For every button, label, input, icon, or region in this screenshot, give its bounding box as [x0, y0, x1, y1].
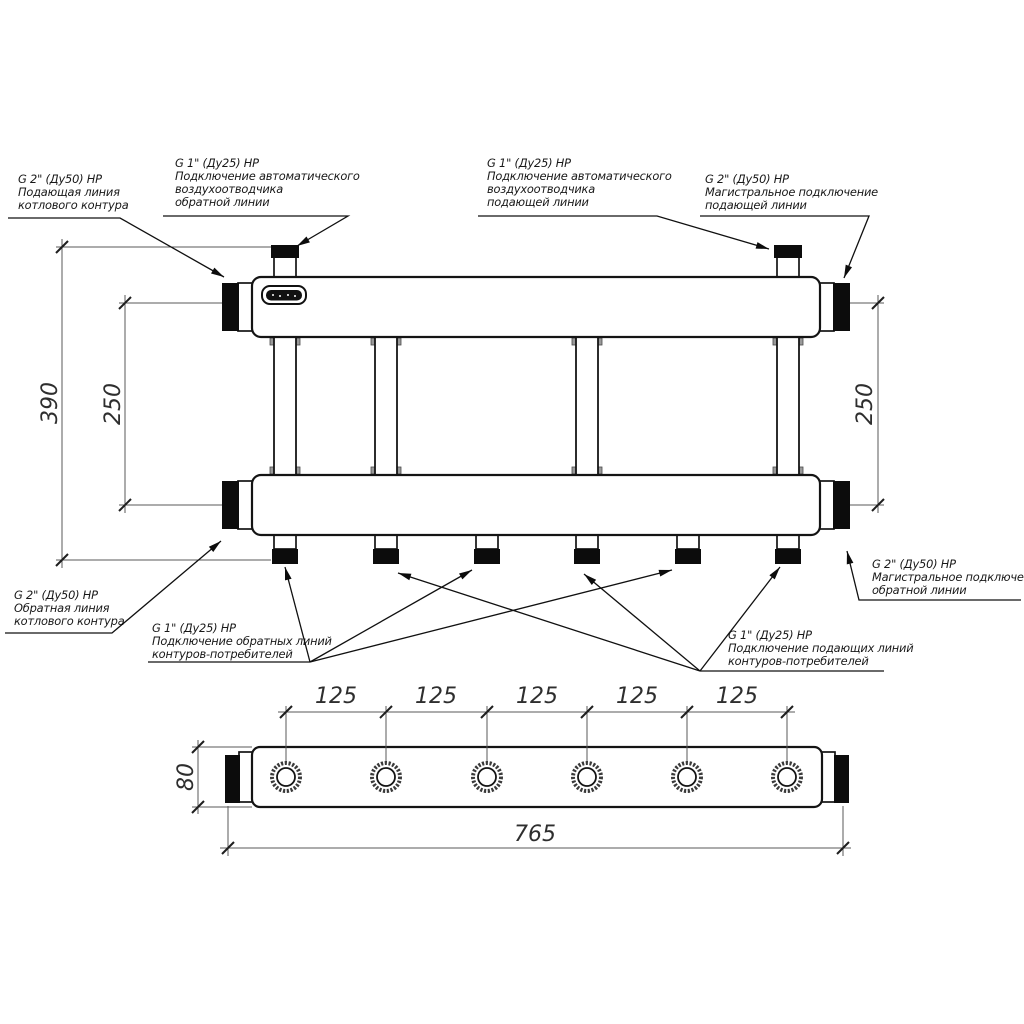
dimension-label: 80: [174, 763, 199, 791]
dimension-label: 390: [38, 382, 63, 424]
callout-text: котлового контура: [14, 614, 125, 628]
bottom-view: 125 125 125 125 125 80 765: [174, 684, 851, 856]
dimension-label: 125: [315, 684, 357, 709]
consumer-port-1: [272, 534, 298, 564]
g2-fitting-left: [225, 755, 240, 803]
bottom-manifold: [222, 475, 850, 535]
g2-fitting-right: [834, 755, 849, 803]
dimension-label: 125: [415, 684, 457, 709]
callout-text: обратной линии: [175, 195, 269, 209]
leader-arrow: [398, 573, 700, 671]
callout-boiler-return: G 2" (Ду50) НР Обратная линия котлового …: [5, 541, 221, 633]
callout-text: контуров-потребителей: [728, 654, 869, 668]
leader-line: [478, 216, 769, 249]
callout-text: подающей линии: [705, 198, 807, 212]
top-manifold: [222, 277, 850, 337]
consumer-port-5: [675, 534, 701, 564]
g2-fitting-bottom-left: [222, 481, 239, 529]
dimension-125-chain: 125 125 125 125 125: [278, 684, 795, 718]
callout-main-return: G 2" (Ду50) НР Магистральное подключение…: [847, 551, 1024, 600]
consumer-ports: [272, 534, 801, 564]
bottom-view-body: [225, 747, 849, 807]
g2-fitting-top-left: [222, 283, 239, 331]
callout-consumer-supplies: G 1" (Ду25) НР Подключение подающих лини…: [398, 567, 913, 671]
leader-arrow: [584, 574, 700, 671]
drawing-sheet: 390 250 250 G 2" (Ду50) НР Подающая лини…: [0, 0, 1024, 1024]
riser-pipe-1: [270, 336, 300, 476]
dimension-label: 125: [716, 684, 758, 709]
air-vent-port-right: [774, 245, 802, 279]
consumer-port-3: [474, 534, 500, 564]
callout-text: Подключение автоматического: [175, 169, 360, 183]
port-circle-6: [773, 763, 801, 791]
brand-logo: [262, 286, 306, 304]
dimension-250-right: 250: [850, 295, 884, 513]
callout-text: Подающая линия: [18, 185, 120, 199]
port-circle-3: [473, 763, 501, 791]
riser-pipe-3: [572, 336, 602, 476]
callout-text: контуров-потребителей: [152, 647, 293, 661]
top-manifold-body: [252, 277, 820, 337]
callout-text: Магистральное подключение: [705, 185, 878, 199]
callout-text: подающей линии: [487, 195, 589, 209]
riser-pipes: [270, 336, 803, 476]
dimension-label: 125: [516, 684, 558, 709]
leader-line: [163, 216, 348, 246]
callout-text: воздухоотводчика: [175, 182, 283, 196]
callout-text: котлового контура: [18, 198, 129, 212]
callout-text: G 2" (Ду50) НР: [18, 172, 102, 186]
callout-text: G 2" (Ду50) НР: [705, 172, 789, 186]
riser-pipe-2: [371, 336, 401, 476]
callout-text: Подключение подающих линий: [728, 641, 913, 655]
front-view: 390 250 250 G 2" (Ду50) НР Подающая лини…: [5, 156, 1024, 671]
port-circle-1: [272, 763, 300, 791]
callout-text: G 1" (Ду25) НР: [728, 628, 812, 642]
callout-text: Магистральное подключение: [872, 570, 1024, 584]
dimension-765: 765: [220, 806, 851, 856]
bottom-manifold-body: [252, 475, 820, 535]
consumer-port-2: [373, 534, 399, 564]
callout-text: G 2" (Ду50) НР: [14, 588, 98, 602]
callout-text: обратной линии: [872, 583, 966, 597]
g2-fitting-bottom-right: [833, 481, 850, 529]
callout-text: G 1" (Ду25) НР: [152, 621, 236, 635]
technical-drawing: 390 250 250 G 2" (Ду50) НР Подающая лини…: [0, 0, 1024, 1024]
consumer-port-4: [574, 534, 600, 564]
air-vent-port-left: [271, 245, 299, 279]
callout-air-vent-return: G 1" (Ду25) НР Подключение автоматическо…: [163, 156, 360, 246]
callout-text: G 1" (Ду25) НР: [487, 156, 571, 170]
dimension-label: 765: [514, 822, 556, 847]
dimension-label: 125: [616, 684, 658, 709]
manifold-plan-body: [252, 747, 822, 807]
dimension-label: 250: [853, 383, 878, 425]
callout-text: G 1" (Ду25) НР: [175, 156, 259, 170]
riser-pipe-4: [773, 336, 803, 476]
consumer-port-6: [775, 534, 801, 564]
leader-arrow: [310, 570, 672, 662]
g2-fitting-top-right: [833, 283, 850, 331]
dimension-label: 250: [101, 383, 126, 425]
port-circle-2: [372, 763, 400, 791]
leader-arrow: [310, 570, 472, 662]
callout-text: G 2" (Ду50) НР: [872, 557, 956, 571]
callout-text: воздухоотводчика: [487, 182, 595, 196]
callout-text: Обратная линия: [14, 601, 110, 615]
dimension-250-left: 250: [101, 295, 222, 513]
port-circle-5: [673, 763, 701, 791]
callout-text: Подключение автоматического: [487, 169, 672, 183]
port-circle-4: [573, 763, 601, 791]
